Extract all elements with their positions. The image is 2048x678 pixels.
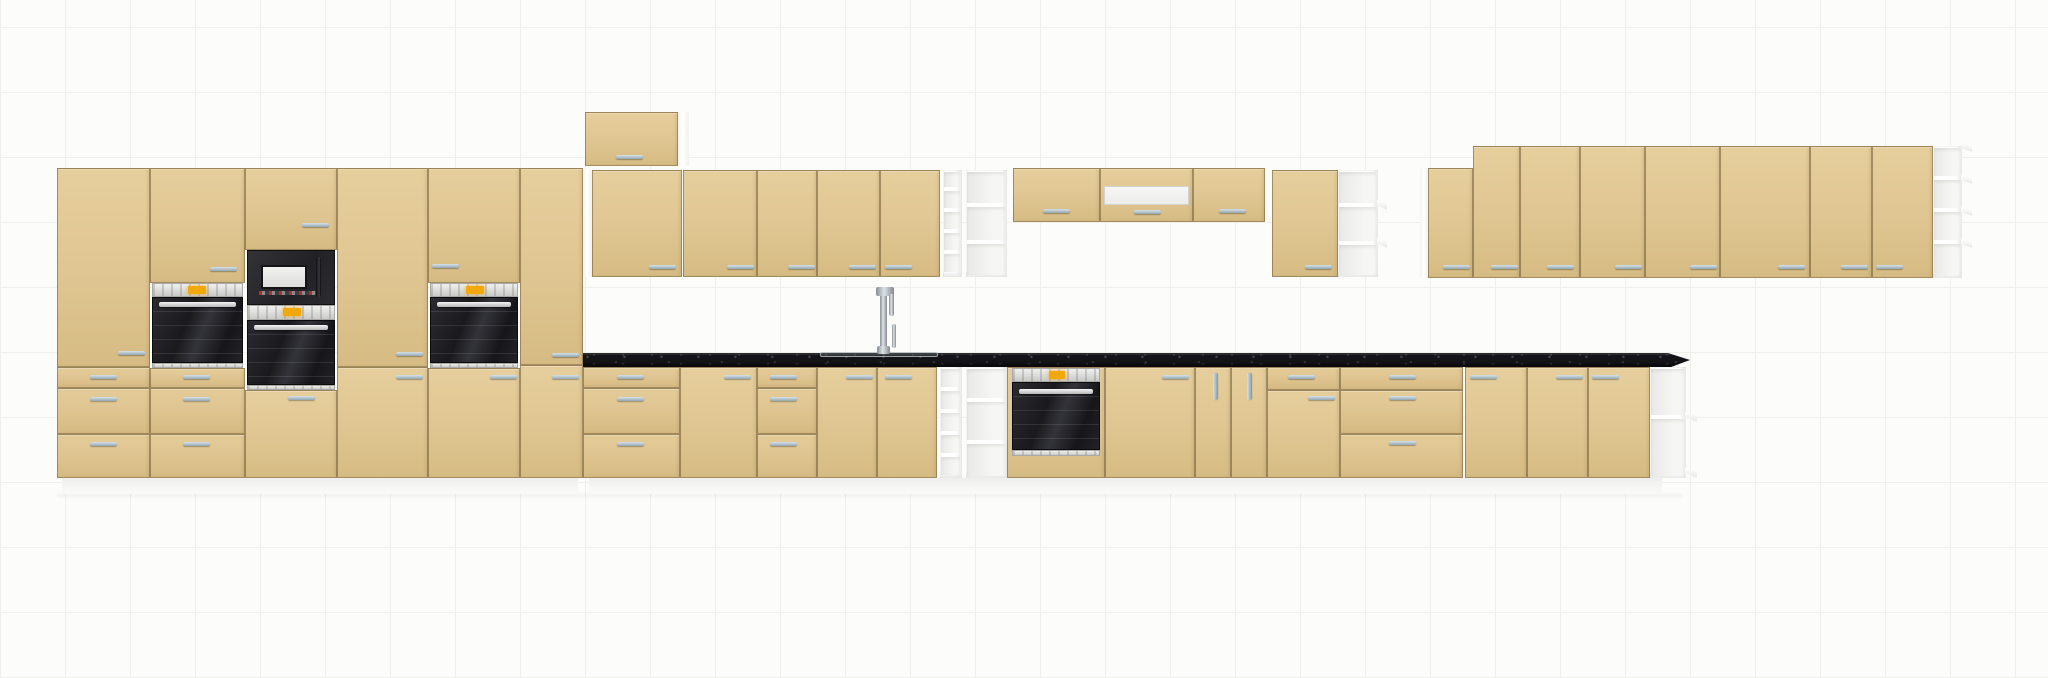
tall-unit-d-door bbox=[337, 168, 428, 367]
oven-1-display bbox=[188, 286, 206, 294]
base-open-shelf-end-wedge-2 bbox=[1685, 468, 1697, 478]
tall-unit-a-drawer-2 bbox=[57, 388, 150, 434]
base-door-2 bbox=[1105, 367, 1195, 478]
tall-unit-f-bottom-door bbox=[520, 365, 583, 478]
wall-open-shelf-mid-cell-2 bbox=[1339, 207, 1376, 241]
right-wall-door-5 bbox=[1645, 146, 1720, 278]
tall-unit-c-bottom-door bbox=[245, 390, 337, 478]
tall-unit-d-bottom-door bbox=[337, 367, 428, 478]
wall-open-shelf-mid-wedge-1 bbox=[1377, 200, 1387, 210]
right-wall-door-8-handle bbox=[1876, 265, 1903, 269]
wall-open-shelf-end-cell-3 bbox=[1934, 212, 1960, 240]
tall-unit-b-drawer-1-handle bbox=[183, 375, 210, 379]
faucet-neck bbox=[880, 294, 887, 354]
right-wall-door-5-handle bbox=[1690, 265, 1717, 269]
microwave-handle bbox=[316, 257, 321, 297]
wall-open-shelf-end-cell-2 bbox=[1934, 180, 1960, 208]
wall-open-shelf-mid-cell-3 bbox=[1339, 245, 1376, 275]
base-wine-rack-cell-3 bbox=[941, 413, 960, 431]
tall-unit-a-drawer-3 bbox=[57, 434, 150, 478]
wall-wine-rack-cell-5 bbox=[944, 254, 960, 272]
wall-wine-rack-cell-4 bbox=[944, 233, 960, 250]
base-drawer-unit-1-drawer-2-handle bbox=[617, 397, 644, 401]
sink-base-door-left-handle bbox=[846, 375, 873, 379]
wall-door-3 bbox=[817, 170, 880, 277]
base-door-4 bbox=[1527, 367, 1588, 478]
short-wall-door-2 bbox=[1193, 168, 1265, 222]
base-open-shelf-cell-1 bbox=[967, 369, 1005, 398]
wall-stack-side-panel bbox=[583, 170, 592, 277]
wall-wine-rack-cell-1 bbox=[944, 172, 960, 187]
faucet-base bbox=[877, 346, 890, 354]
base-drawer-unit-1-drawer-3-handle bbox=[617, 442, 644, 446]
tall-unit-f-door bbox=[520, 168, 583, 365]
wall-open-shelf-end-cell-4 bbox=[1934, 244, 1960, 276]
wall-wine-rack-cell-2 bbox=[944, 191, 960, 208]
sink-base-door-right bbox=[877, 367, 937, 478]
base-drawer-unit-1-drawer-3 bbox=[583, 434, 680, 478]
base-drawer-unit-2-drawer-3-handle bbox=[770, 442, 797, 446]
oven-4-bottom-trim bbox=[1012, 450, 1100, 456]
short-wall-glass-insert bbox=[1104, 186, 1189, 205]
base-drawer-door-unit-drawer-handle bbox=[1288, 375, 1315, 379]
right-wall-door-6 bbox=[1720, 146, 1810, 278]
base-open-shelf-cell-2 bbox=[967, 402, 1005, 440]
oven-4-display bbox=[1049, 371, 1065, 379]
base-drawer-unit-2-drawer-2-handle bbox=[770, 397, 797, 401]
right-wall-door-7 bbox=[1810, 146, 1872, 278]
wall-open-shelf-end-wedge-2 bbox=[1961, 175, 1972, 184]
tall-unit-f-bottom-door-handle bbox=[552, 375, 579, 379]
base-drawer-door-unit-door-handle bbox=[1308, 396, 1335, 400]
wall-open-shelf-cell-1 bbox=[967, 172, 1005, 203]
plinth-base-section bbox=[589, 478, 1662, 494]
tall-unit-a-door-handle bbox=[118, 351, 145, 355]
tall-unit-a-drawer-1-handle bbox=[90, 375, 117, 379]
wall-open-shelf-mid-cell-1 bbox=[1339, 172, 1376, 203]
wall-open-shelf-cell-3 bbox=[967, 244, 1005, 275]
wall-stack-door-handle bbox=[649, 265, 676, 269]
base-pair-door-right-handle bbox=[1247, 373, 1251, 400]
base-drawer-unit-2-drawer-1-handle bbox=[770, 375, 797, 379]
base-open-shelf-cell-3 bbox=[967, 444, 1005, 476]
wall-open-shelf-end-cell-1 bbox=[1934, 148, 1960, 176]
microwave-button-row bbox=[259, 291, 319, 295]
wall-open-shelf-cell-2 bbox=[967, 207, 1005, 240]
short-wall-door-1 bbox=[1013, 168, 1100, 222]
tall-unit-e-bottom-door-handle bbox=[490, 375, 517, 379]
right-wall-door-4-handle bbox=[1615, 265, 1642, 269]
tall-unit-e-bottom-door bbox=[428, 368, 520, 478]
base-drawer-unit-3-drawer-1-handle bbox=[1389, 375, 1416, 379]
right-wall-door-6-handle bbox=[1778, 265, 1805, 269]
wall-door-2 bbox=[757, 170, 817, 277]
floor-shadow bbox=[57, 494, 1682, 497]
wall-door-5 bbox=[1272, 170, 1338, 277]
base-wine-rack-cell-2 bbox=[941, 391, 960, 409]
base-drawer-unit-3-drawer-2-handle bbox=[1389, 396, 1416, 400]
base-wine-rack-cell-4 bbox=[941, 435, 960, 453]
right-wall-door-2-handle bbox=[1491, 265, 1518, 269]
wall-open-shelf-end-wedge-4 bbox=[1961, 239, 1972, 248]
faucet-spout bbox=[889, 294, 894, 316]
base-open-shelf-end-wedge-1 bbox=[1685, 412, 1697, 422]
base-drawer-unit-3-drawer-3-handle bbox=[1389, 441, 1416, 445]
right-wall-door-4 bbox=[1580, 146, 1645, 278]
tall-unit-a-drawer-2-handle bbox=[90, 397, 117, 401]
right-wall-door-3 bbox=[1520, 146, 1580, 278]
right-wall-side-panel bbox=[1420, 168, 1428, 278]
tall-unit-b-drawer-3 bbox=[150, 434, 245, 478]
oven-2-handle-bar bbox=[254, 325, 328, 330]
right-wall-door-7-handle bbox=[1841, 265, 1868, 269]
tall-unit-d-door-handle bbox=[396, 352, 423, 356]
base-drawer-door-unit-door bbox=[1267, 390, 1340, 478]
tall-unit-c-bottom-door-handle bbox=[288, 396, 315, 400]
wall-door-4-handle bbox=[885, 265, 912, 269]
short-wall-door-1-handle bbox=[1043, 209, 1070, 213]
tall-unit-e-door-handle bbox=[432, 264, 459, 268]
base-drawer-unit-2-drawer-2 bbox=[757, 388, 817, 434]
oven-1-handle-bar bbox=[159, 302, 236, 307]
oven-3-display bbox=[466, 286, 484, 294]
tall-unit-b-drawer-2-handle bbox=[183, 397, 210, 401]
wall-door-3-handle bbox=[849, 265, 876, 269]
microwave-window bbox=[261, 265, 307, 289]
base-open-shelf-end-cell-2 bbox=[1651, 419, 1684, 476]
wall-open-shelf-end-wedge-1 bbox=[1961, 143, 1972, 152]
base-door-5 bbox=[1588, 367, 1650, 478]
base-open-shelf-end-cell-1 bbox=[1651, 369, 1684, 415]
overhead-box-side-panel bbox=[678, 112, 689, 166]
base-door-1 bbox=[680, 367, 757, 478]
base-door-4-handle bbox=[1556, 375, 1583, 379]
plinth-tall-section bbox=[62, 478, 578, 494]
base-door-2-handle bbox=[1162, 375, 1189, 379]
base-pair-door-left-handle bbox=[1213, 373, 1217, 400]
tall-unit-f-door-handle bbox=[552, 353, 579, 357]
short-wall-door-2-handle bbox=[1219, 209, 1246, 213]
tall-unit-b-door-handle bbox=[210, 267, 237, 271]
wall-door-2-handle bbox=[788, 265, 815, 269]
base-wine-rack-cell-5 bbox=[941, 457, 960, 475]
short-wall-glass-cabinet-handle bbox=[1134, 210, 1161, 214]
base-drawer-unit-1-drawer-2 bbox=[583, 388, 680, 434]
wall-door-5-handle bbox=[1305, 265, 1332, 269]
tall-unit-d-bottom-door-handle bbox=[396, 375, 423, 379]
wall-door-1-handle bbox=[727, 265, 754, 269]
base-door-3 bbox=[1465, 367, 1527, 478]
right-wall-door-8 bbox=[1872, 146, 1933, 278]
tall-unit-c-door bbox=[245, 168, 337, 250]
oven-2-display bbox=[283, 308, 301, 316]
tall-unit-b-door bbox=[150, 168, 245, 283]
wall-door-1 bbox=[683, 170, 757, 277]
base-door-5-handle bbox=[1592, 375, 1619, 379]
oven-3-handle-bar bbox=[437, 302, 511, 307]
right-wall-door-2 bbox=[1473, 146, 1520, 278]
base-door-1-handle bbox=[724, 375, 751, 379]
tall-unit-c-door-handle bbox=[302, 223, 329, 227]
overhead-box-door-handle bbox=[616, 155, 643, 159]
tall-unit-a-door bbox=[57, 168, 150, 367]
sink-base-door-left bbox=[817, 367, 877, 478]
wall-wine-rack-cell-3 bbox=[944, 212, 960, 229]
base-door-3-handle bbox=[1470, 375, 1497, 379]
base-drawer-unit-1-drawer-1-handle bbox=[617, 375, 644, 379]
tall-unit-b-drawer-3-handle bbox=[183, 442, 210, 446]
tall-unit-b-drawer-2 bbox=[150, 388, 245, 434]
wall-stack-door bbox=[592, 170, 682, 277]
oven-4-handle-bar bbox=[1019, 389, 1093, 394]
faucet-spray-lever bbox=[892, 324, 896, 348]
right-wall-door-1-handle bbox=[1443, 265, 1470, 269]
base-drawer-unit-2-drawer-3 bbox=[757, 434, 817, 478]
base-wine-rack-cell-1 bbox=[941, 369, 960, 387]
wall-open-shelf-end-wedge-3 bbox=[1961, 207, 1972, 216]
sink-base-door-right-handle bbox=[885, 375, 912, 379]
right-wall-door-3-handle bbox=[1547, 265, 1574, 269]
tall-unit-a-drawer-3-handle bbox=[90, 442, 117, 446]
right-wall-door-1 bbox=[1428, 168, 1473, 278]
worktop bbox=[583, 353, 1690, 367]
wall-open-shelf-mid-wedge-2 bbox=[1377, 238, 1387, 248]
kitchen-render-canvas bbox=[0, 0, 2048, 678]
wall-door-4 bbox=[880, 170, 940, 277]
